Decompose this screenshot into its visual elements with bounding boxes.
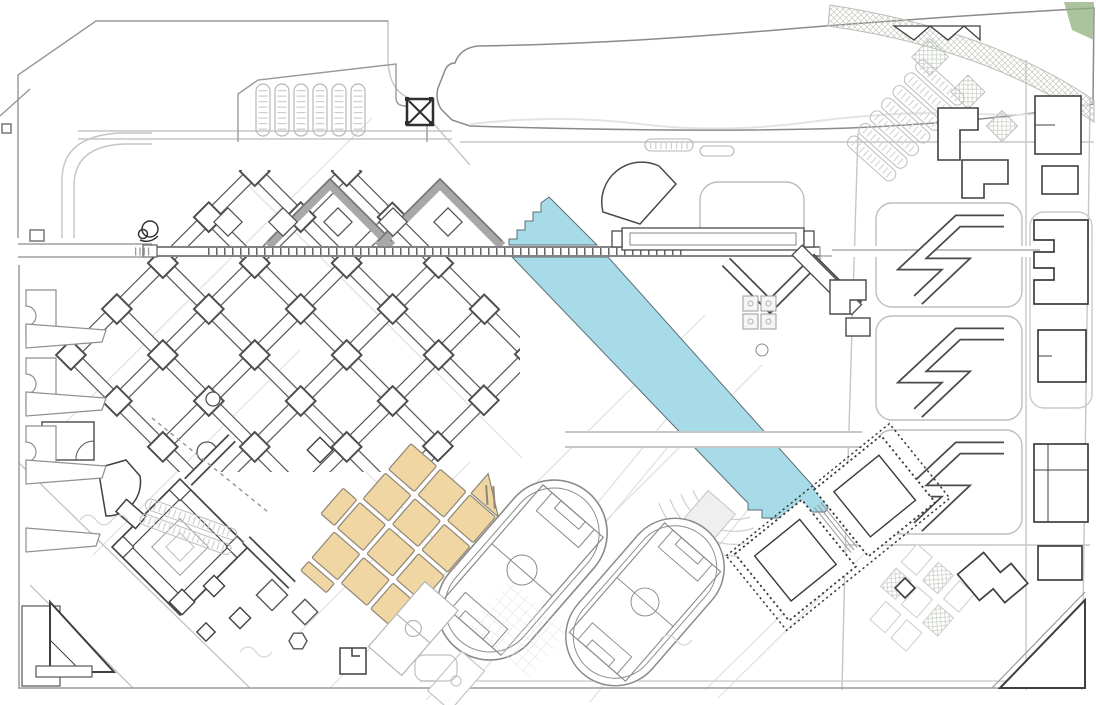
axis-diamond-pavilions [214, 208, 462, 236]
site-plan-canvas [0, 0, 1096, 705]
canal-road-crossing [565, 431, 862, 448]
entry-gate-sculpture [139, 221, 159, 241]
gate-pavilion-x [405, 97, 433, 125]
mid-right-l-buildings [830, 280, 870, 336]
southeast-parking-grid [859, 544, 974, 660]
site-plan-page [0, 0, 1096, 705]
north-green-belt [437, 2, 1094, 142]
court-squares [743, 296, 776, 356]
entrance-road [18, 244, 152, 257]
dormitory-zigzag-blocks [912, 221, 1004, 527]
green-corner-patch [1064, 2, 1094, 40]
theatre-fan-building [602, 162, 676, 224]
axis-slab-building [612, 228, 814, 250]
east-slab-buildings [1034, 220, 1088, 580]
